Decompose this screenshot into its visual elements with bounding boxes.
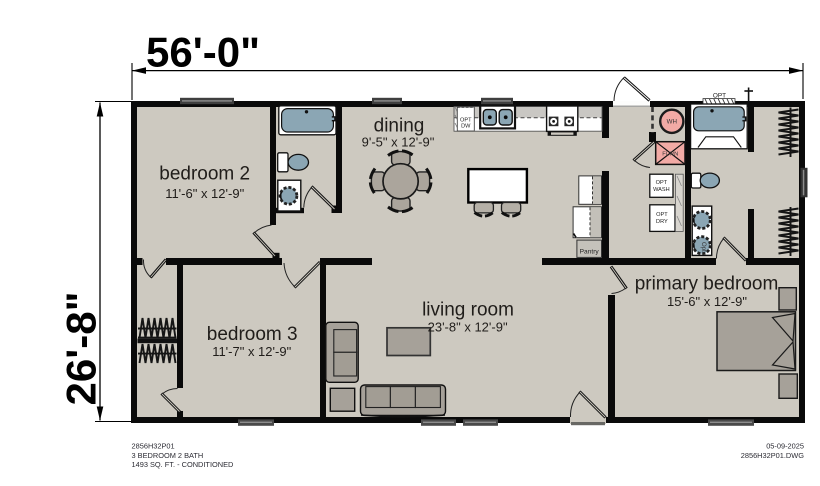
svg-text:15'-6" x 12'-9": 15'-6" x 12'-9": [667, 294, 747, 309]
svg-text:living room: living room: [422, 299, 514, 320]
svg-text:05-09-2025: 05-09-2025: [766, 442, 804, 451]
svg-text:9'-5" x 12'-9": 9'-5" x 12'-9": [362, 135, 435, 150]
svg-text:2856H32P01.DWG: 2856H32P01.DWG: [741, 451, 805, 460]
svg-text:dining: dining: [374, 116, 425, 137]
svg-text:bedroom 2: bedroom 2: [159, 164, 250, 185]
svg-text:primary bedroom: primary bedroom: [635, 274, 779, 295]
svg-text:23'-8" x 12'-9": 23'-8" x 12'-9": [428, 319, 508, 334]
svg-text:11'-7" x 12'-9": 11'-7" x 12'-9": [212, 344, 291, 359]
svg-text:26'-8": 26'-8": [58, 292, 105, 406]
svg-text:56'-0": 56'-0": [146, 29, 260, 76]
svg-text:Pantry: Pantry: [580, 248, 600, 255]
svg-text:WH: WH: [667, 119, 677, 126]
svg-text:FURN: FURN: [662, 152, 678, 158]
svg-text:OPT: OPT: [656, 180, 668, 186]
svg-text:WASH: WASH: [653, 187, 670, 193]
svg-text:bedroom 3: bedroom 3: [207, 324, 298, 345]
svg-text:OPT: OPT: [713, 93, 726, 100]
svg-text:2856H32P01: 2856H32P01: [132, 442, 175, 451]
svg-text:11'-6" x 12'-9": 11'-6" x 12'-9": [165, 186, 244, 201]
svg-text:1493 SQ. FT. - CONDITIONED: 1493 SQ. FT. - CONDITIONED: [132, 460, 234, 469]
svg-text:DW: DW: [461, 123, 471, 129]
svg-text:Opt: Opt: [700, 242, 706, 252]
svg-text:DRY: DRY: [656, 219, 668, 225]
svg-text:OPT: OPT: [656, 212, 668, 218]
svg-text:3 BEDROOM 2 BATH: 3 BEDROOM 2 BATH: [132, 451, 204, 460]
